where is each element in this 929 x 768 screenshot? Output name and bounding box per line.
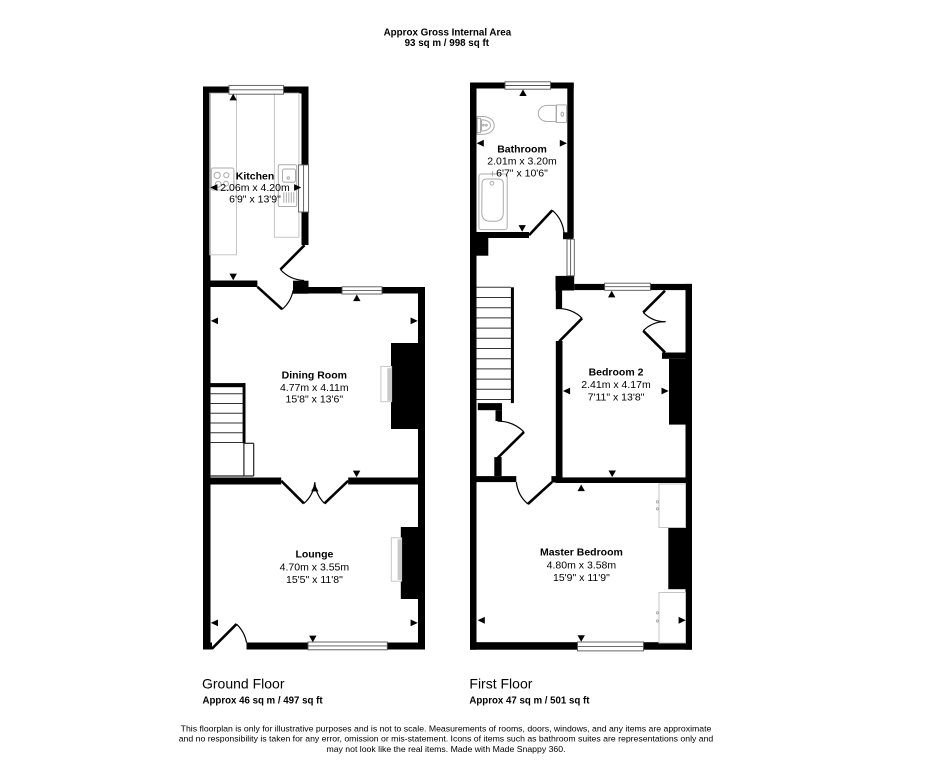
svg-text:Ground Floor: Ground Floor	[202, 676, 285, 692]
svg-text:Dining Room: Dining Room	[282, 370, 347, 382]
svg-text:2.01m x 3.20m: 2.01m x 3.20m	[487, 156, 557, 168]
svg-text:15'5" x 11'8": 15'5" x 11'8"	[286, 574, 343, 586]
svg-text:Approx 46 sq m / 497 sq ft: Approx 46 sq m / 497 sq ft	[203, 696, 324, 707]
svg-text:Lounge: Lounge	[295, 548, 333, 560]
svg-text:6'7" x 10'6": 6'7" x 10'6"	[496, 168, 548, 180]
svg-text:Approx Gross Internal Area: Approx Gross Internal Area	[384, 28, 512, 39]
svg-text:4.77m x 4.11m: 4.77m x 4.11m	[280, 382, 349, 394]
svg-text:2.06m x 4.20m: 2.06m x 4.20m	[220, 182, 290, 194]
svg-text:15'8" x 13'6": 15'8" x 13'6"	[286, 394, 344, 406]
svg-text:Bedroom 2: Bedroom 2	[589, 367, 644, 379]
svg-text:First Floor: First Floor	[469, 676, 532, 692]
svg-text:4.70m x 3.55m: 4.70m x 3.55m	[280, 561, 350, 573]
svg-text:Kitchen: Kitchen	[236, 171, 275, 183]
svg-text:and no responsibility is taken: and no responsibility is taken for any e…	[179, 734, 714, 744]
svg-text:4.80m x 3.58m: 4.80m x 3.58m	[547, 560, 617, 572]
svg-text:Bathroom: Bathroom	[497, 144, 547, 156]
svg-text:may not look like the real ite: may not look like the real items. Made w…	[326, 744, 565, 754]
svg-text:6'9" x 13'9": 6'9" x 13'9"	[229, 193, 281, 205]
svg-text:2.41m x 4.17m: 2.41m x 4.17m	[581, 379, 651, 391]
svg-text:15'9" x 11'9": 15'9" x 11'9"	[553, 572, 610, 584]
svg-text:93 sq m / 998 sq ft: 93 sq m / 998 sq ft	[405, 38, 490, 49]
svg-text:7'11" x 13'8": 7'11" x 13'8"	[588, 391, 645, 403]
svg-text:Master Bedroom: Master Bedroom	[540, 547, 623, 559]
svg-text:This floorplan is only for ill: This floorplan is only for illustrative …	[181, 723, 712, 733]
svg-text:Approx 47 sq m / 501 sq ft: Approx 47 sq m / 501 sq ft	[469, 696, 590, 707]
